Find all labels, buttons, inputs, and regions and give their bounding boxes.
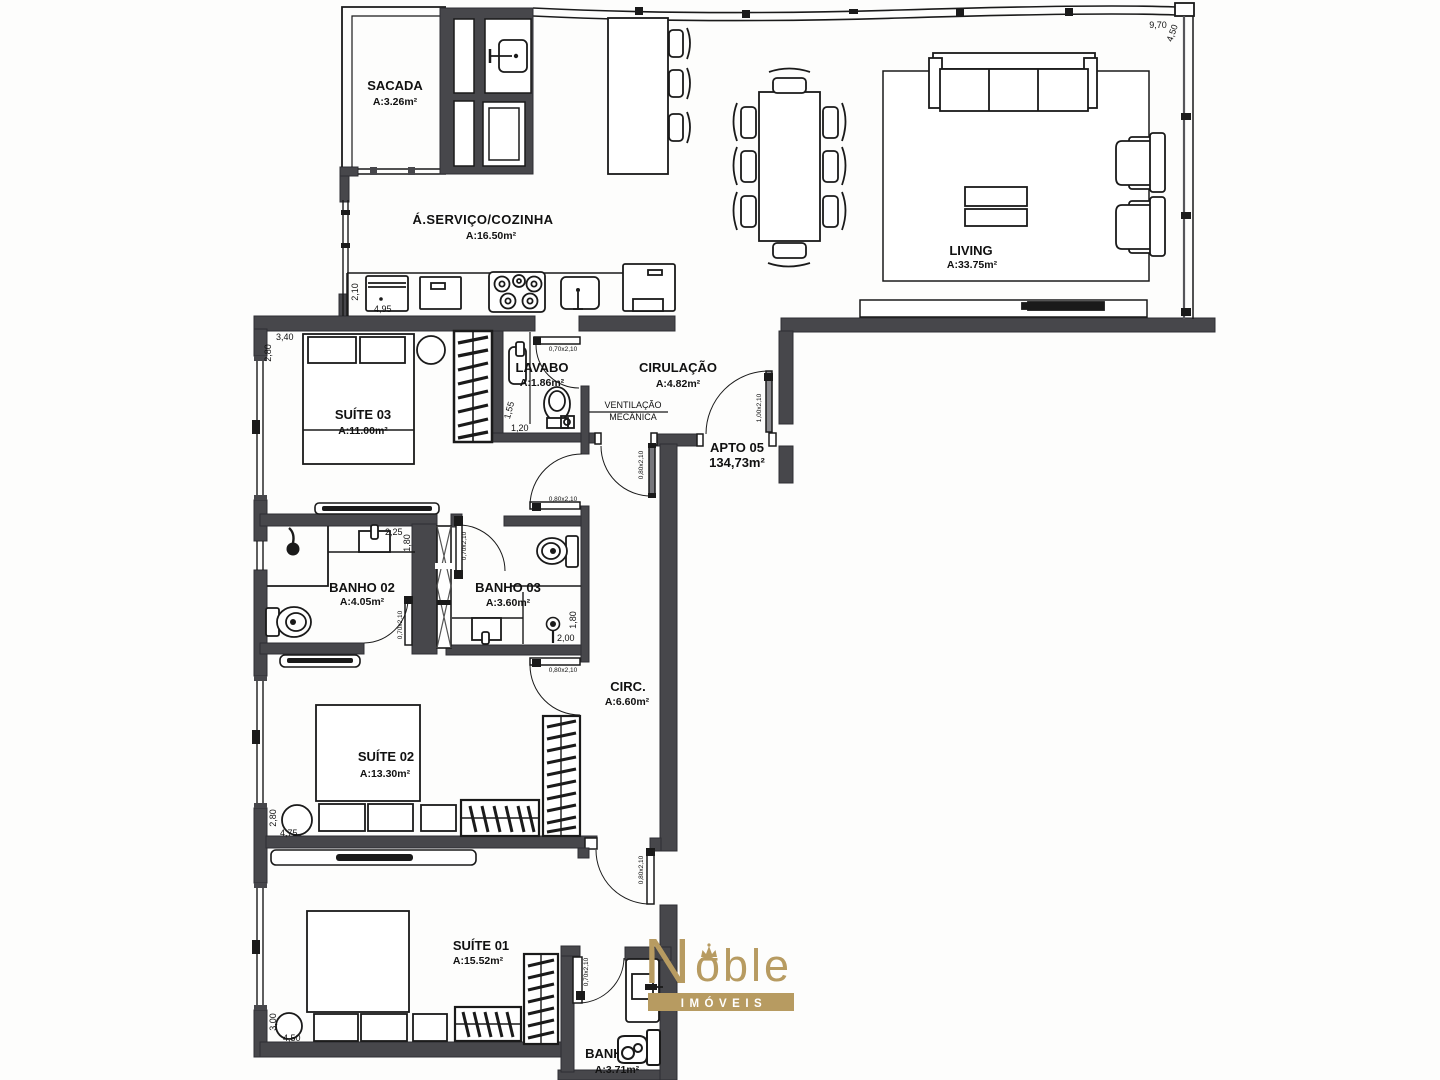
svg-text:0,70x2,10: 0,70x2,10 [461,531,468,560]
svg-text:3,00: 3,00 [268,1013,278,1031]
svg-text:SUÍTE 01: SUÍTE 01 [453,938,509,953]
svg-text:0,80x2,10: 0,80x2,10 [638,450,645,479]
svg-text:0,80x2,10: 0,80x2,10 [549,667,578,674]
svg-text:A:3.60m²: A:3.60m² [486,597,531,609]
svg-text:LIVING: LIVING [949,243,992,258]
svg-text:1,80: 1,80 [568,611,578,629]
svg-text:VENTILAÇÃO: VENTILAÇÃO [604,400,661,410]
svg-text:0,80x2,10: 0,80x2,10 [638,855,645,884]
svg-text:1,20: 1,20 [511,423,529,433]
svg-text:4,75: 4,75 [280,828,298,838]
svg-text:2,80: 2,80 [263,344,273,362]
svg-text:A:3.26m²: A:3.26m² [373,96,418,108]
svg-text:0,70x2,10: 0,70x2,10 [583,957,590,986]
svg-text:BANHO 03: BANHO 03 [475,580,541,595]
svg-text:2,25: 2,25 [385,527,403,537]
svg-text:IMÓVEIS: IMÓVEIS [681,997,767,1010]
svg-text:SUÍTE 03: SUÍTE 03 [335,407,391,422]
svg-text:1,55: 1,55 [502,400,516,420]
svg-text:CIRC.: CIRC. [610,679,645,694]
svg-text:2,10: 2,10 [350,283,360,301]
svg-text:0,70x2,10: 0,70x2,10 [397,610,404,639]
svg-text:A:33.75m²: A:33.75m² [947,259,998,271]
svg-text:9,70: 9,70 [1149,20,1167,30]
svg-text:A:11.00m²: A:11.00m² [338,425,388,437]
svg-text:APTO 05: APTO 05 [710,440,764,455]
svg-text:3,40: 3,40 [276,332,294,342]
svg-text:A:16.50m²: A:16.50m² [466,230,517,242]
svg-text:A:13.30m²: A:13.30m² [360,768,411,780]
svg-text:N: N [644,925,690,997]
svg-text:A:15.52m²: A:15.52m² [453,955,504,967]
svg-text:A:1.86m²: A:1.86m² [520,377,565,389]
svg-text:A:6.60m²: A:6.60m² [605,696,650,708]
svg-text:A:4.05m²: A:4.05m² [340,596,385,608]
svg-text:134,73m²: 134,73m² [709,455,765,470]
svg-text:4,50: 4,50 [1164,23,1179,43]
svg-text:BANHO 02: BANHO 02 [329,580,395,595]
svg-text:Á.SERVIÇO/COZINHA: Á.SERVIÇO/COZINHA [413,212,554,227]
svg-text:MECÂNICA: MECÂNICA [609,412,657,422]
svg-text:1,00x2,10: 1,00x2,10 [756,393,763,422]
svg-text:A:3.71m²: A:3.71m² [595,1064,640,1076]
svg-text:LAVABO: LAVABO [516,360,569,375]
svg-text:4,95: 4,95 [374,304,392,314]
svg-text:0,80x2,10: 0,80x2,10 [549,496,578,503]
svg-text:2,00: 2,00 [557,633,575,643]
svg-text:4,50: 4,50 [283,1033,301,1043]
svg-text:SUÍTE 02: SUÍTE 02 [358,749,414,764]
svg-text:A:4.82m²: A:4.82m² [656,378,701,390]
svg-text:SACADA: SACADA [367,78,423,93]
svg-text:1,80: 1,80 [402,534,412,552]
svg-text:CIRULAÇÃO: CIRULAÇÃO [639,360,717,375]
svg-text:2,80: 2,80 [268,809,278,827]
svg-text:0,70x2,10: 0,70x2,10 [549,346,578,353]
